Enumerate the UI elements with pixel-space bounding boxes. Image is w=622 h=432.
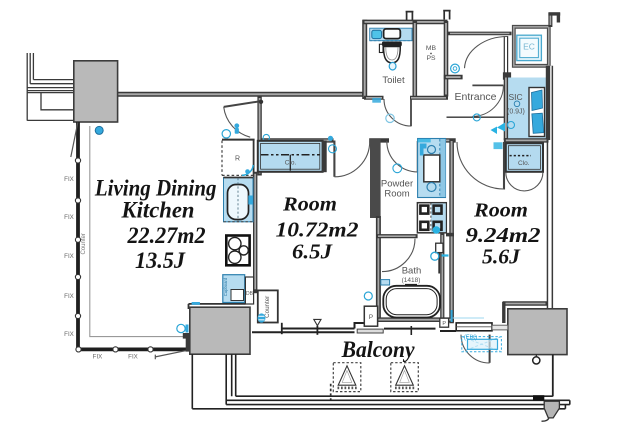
svg-text:FIX: FIX (93, 354, 103, 361)
svg-text:FIX: FIX (64, 331, 74, 338)
svg-text:10.72m2: 10.72m2 (276, 217, 360, 241)
svg-text:Bath: Bath (402, 266, 422, 277)
svg-text:FIX: FIX (64, 253, 74, 260)
svg-text:P: P (369, 314, 373, 321)
svg-text:(0.9J): (0.9J) (507, 109, 525, 116)
svg-text:Kitchen: Kitchen (121, 197, 195, 222)
svg-text:P: P (442, 321, 446, 327)
svg-text:MB: MB (426, 45, 437, 52)
svg-text:PS: PS (426, 55, 436, 62)
svg-text:Clo.: Clo. (518, 160, 530, 167)
svg-text:9.24m2: 9.24m2 (466, 223, 542, 247)
svg-text:R: R (235, 156, 240, 163)
svg-text:Counter: Counter (81, 233, 87, 254)
svg-text:5.6J: 5.6J (482, 245, 522, 269)
svg-text:Entrance: Entrance (454, 91, 496, 103)
svg-text:Balcony: Balcony (341, 337, 416, 362)
svg-text:FIX: FIX (64, 214, 74, 221)
svg-text:Room: Room (282, 194, 337, 216)
svg-text:FIX: FIX (64, 176, 74, 183)
svg-text:FIX: FIX (128, 354, 138, 361)
svg-text:Counter: Counter (264, 296, 271, 318)
svg-text:FIX: FIX (64, 293, 74, 300)
svg-text:Clo.: Clo. (285, 159, 297, 166)
svg-text:DB: DB (246, 291, 254, 297)
svg-text:Toilet: Toilet (382, 75, 405, 86)
svg-text:6.5J: 6.5J (292, 240, 334, 264)
svg-text:Cupboard: Cupboard (223, 277, 228, 296)
svg-text:Room: Room (384, 189, 409, 200)
svg-text:(1418): (1418) (402, 277, 421, 284)
svg-text:22.27m2: 22.27m2 (127, 223, 206, 248)
svg-text:SIC: SIC (509, 92, 523, 102)
svg-text:EC: EC (523, 42, 535, 52)
svg-text:13.5J: 13.5J (135, 248, 186, 273)
svg-text:(FIX): (FIX) (464, 335, 477, 341)
svg-text:Room: Room (473, 199, 528, 221)
